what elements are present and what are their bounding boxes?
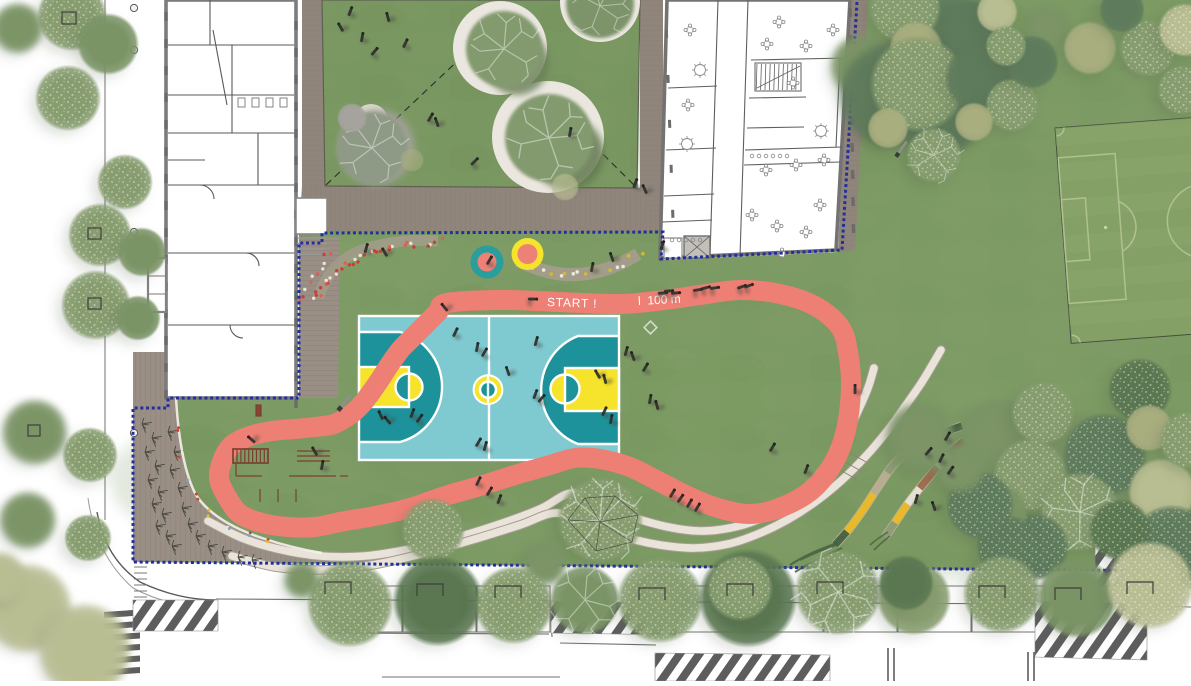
svg-text:START !: START ! — [547, 295, 598, 311]
